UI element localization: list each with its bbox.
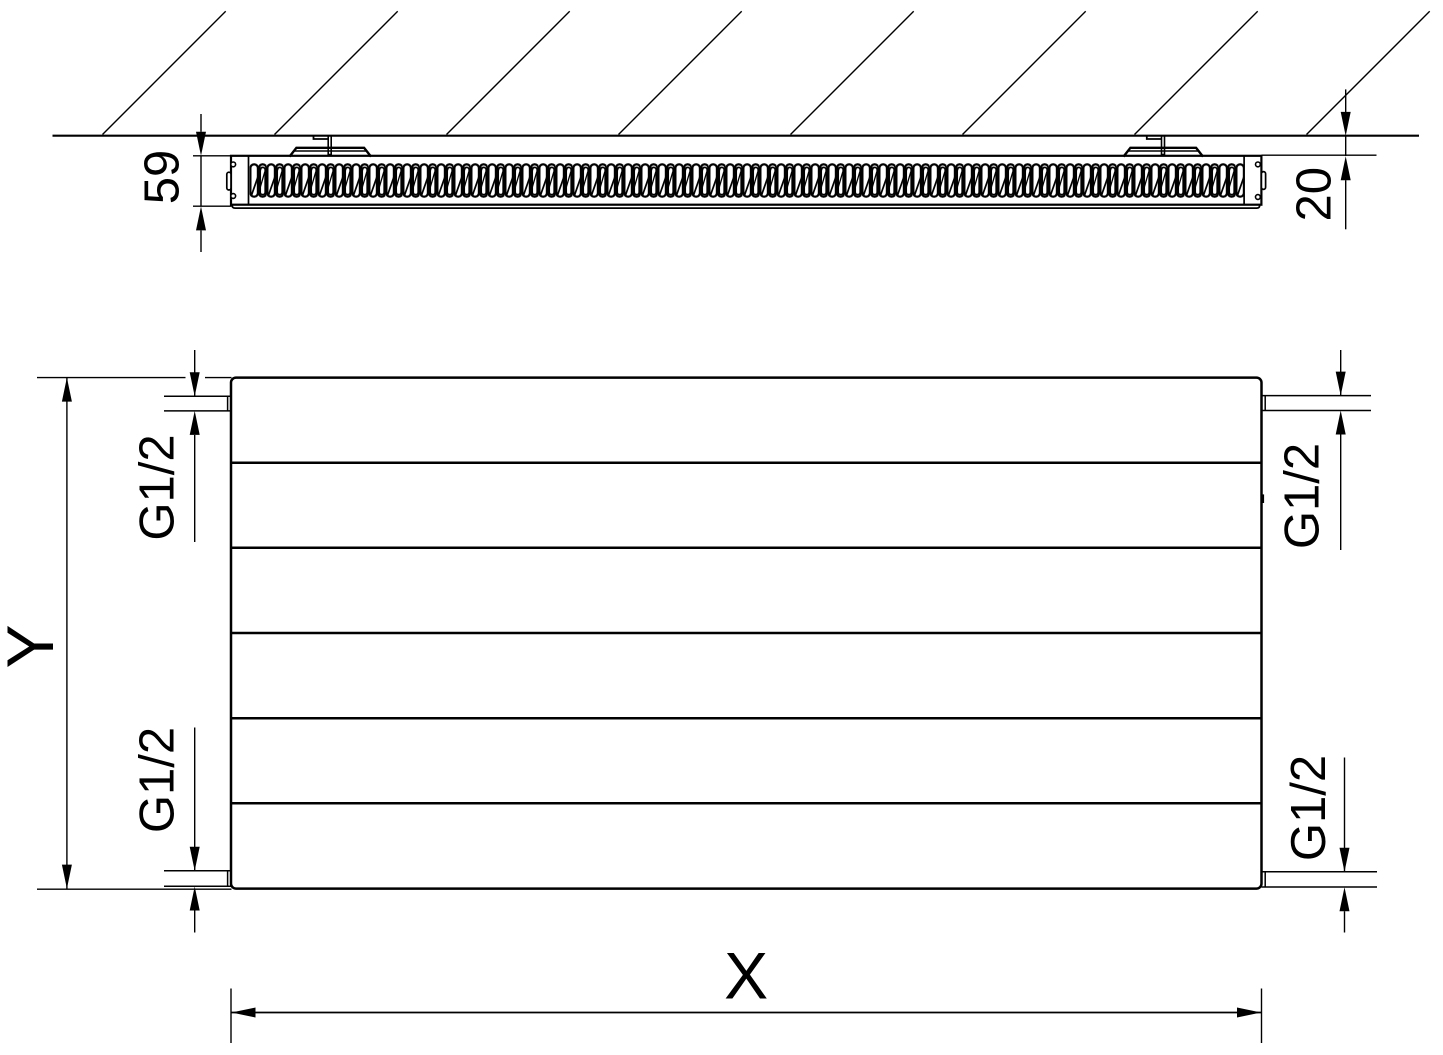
svg-text:59: 59	[135, 150, 189, 205]
svg-text:G1/2: G1/2	[1275, 443, 1329, 549]
svg-text:G1/2: G1/2	[130, 434, 184, 540]
svg-text:20: 20	[1287, 167, 1341, 222]
svg-text:G1/2: G1/2	[130, 727, 184, 833]
svg-text:Y: Y	[0, 624, 67, 668]
svg-text:G1/2: G1/2	[1282, 755, 1336, 861]
svg-text:X: X	[724, 938, 768, 1012]
